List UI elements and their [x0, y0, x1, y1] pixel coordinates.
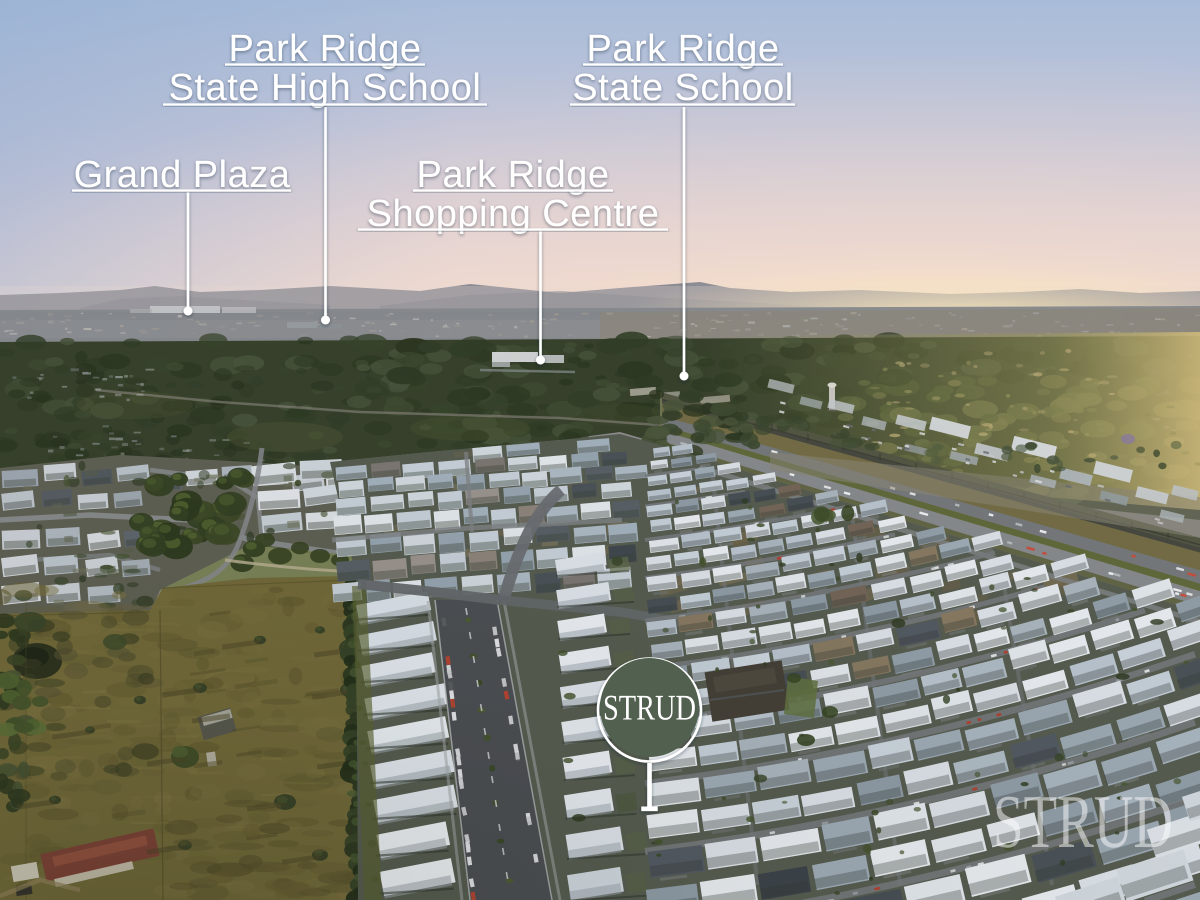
- svg-text:STRUD: STRUD: [993, 780, 1173, 864]
- svg-text:STRUD: STRUD: [603, 688, 696, 728]
- svg-text:State High School: State High School: [169, 67, 482, 109]
- svg-text:State School: State School: [572, 67, 793, 109]
